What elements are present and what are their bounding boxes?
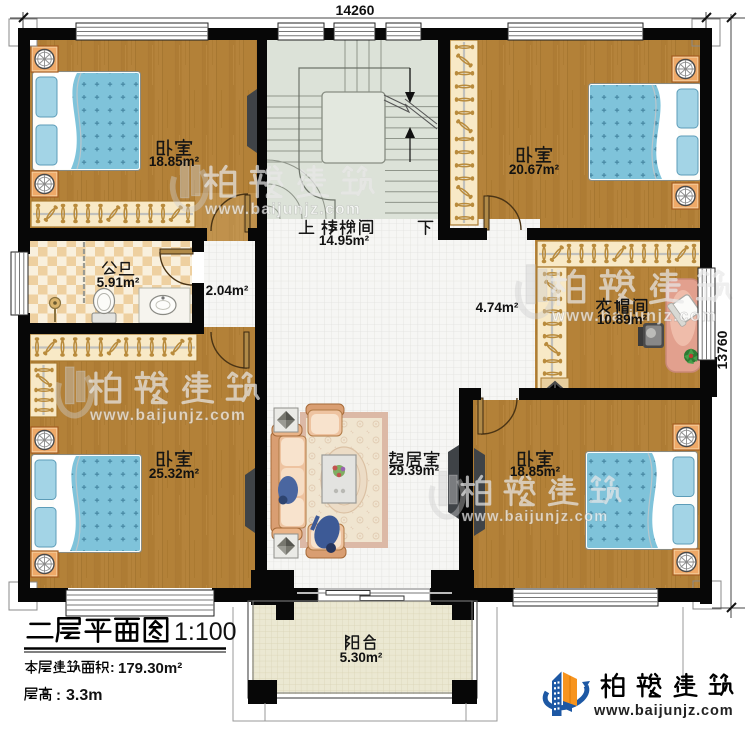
svg-text:18.85m²: 18.85m² — [510, 464, 561, 479]
svg-text:25.32m²: 25.32m² — [149, 466, 200, 481]
svg-text:29.39m²: 29.39m² — [389, 463, 440, 478]
svg-text:14.95m²: 14.95m² — [319, 233, 370, 248]
svg-text:www.baijunjz.com: www.baijunjz.com — [89, 407, 246, 424]
svg-text:3.3m: 3.3m — [66, 687, 102, 704]
svg-text:10.89m²: 10.89m² — [597, 312, 648, 327]
svg-text:5.30m²: 5.30m² — [340, 650, 383, 665]
svg-text:2.04m²: 2.04m² — [206, 283, 249, 298]
svg-text:179.30m²: 179.30m² — [118, 660, 182, 677]
svg-text:www.baijunjz.com: www.baijunjz.com — [461, 509, 609, 525]
svg-text::: : — [110, 659, 115, 675]
svg-text:13760: 13760 — [714, 330, 730, 369]
svg-text:www.baijunjz.com: www.baijunjz.com — [593, 703, 734, 719]
svg-text:1:100: 1:100 — [174, 618, 237, 646]
svg-text:18.85m²: 18.85m² — [149, 154, 200, 169]
svg-text:www.baijunjz.com: www.baijunjz.com — [204, 201, 361, 218]
svg-text:4.74m²: 4.74m² — [476, 300, 519, 315]
svg-text:14260: 14260 — [336, 2, 375, 18]
svg-text::: : — [56, 687, 61, 704]
svg-text:20.67m²: 20.67m² — [509, 162, 560, 177]
svg-text:5.91m²: 5.91m² — [97, 275, 140, 290]
